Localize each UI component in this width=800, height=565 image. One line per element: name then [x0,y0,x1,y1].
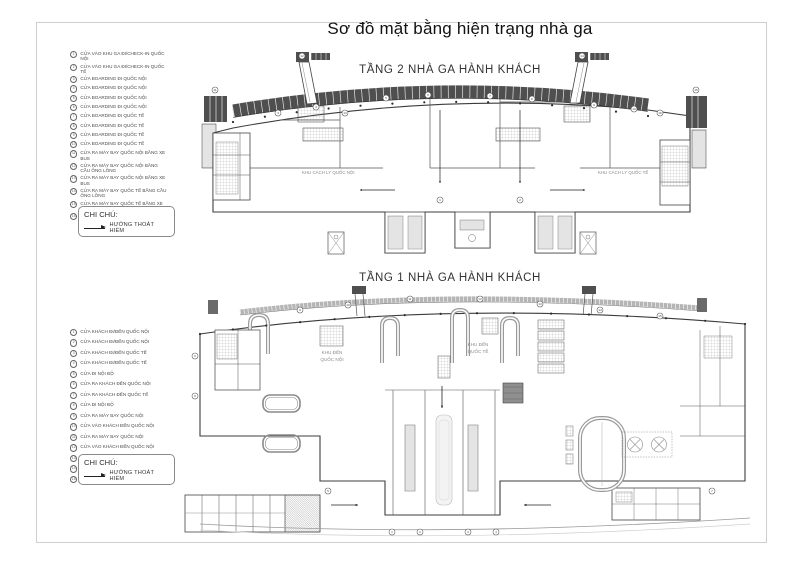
column-dot [551,104,553,106]
legend-item-number: 8 [70,123,77,130]
legend-item-number: 3 [70,350,77,357]
floor2-plan: KHU CÁCH LY QUỐC NỘI KHU CÁCH LY QUỐC TẾ… [190,50,775,265]
column-dot [665,317,667,319]
svg-text:KHU ĐẾN: KHU ĐẾN [322,349,343,355]
gate-marker-number: 11 [213,88,216,92]
gate-marker-number: 3 [277,111,279,115]
svg-text:QUỐC NỘI: QUỐC NỘI [320,356,343,362]
legend-item: 7CỬA RA KHÁCH ĐẾN QUỐC TẾ [70,392,190,399]
equipment-block [438,356,450,378]
gate-marker-number: 3 [467,530,469,534]
column-dot [455,101,457,103]
gate-marker-number: 15 [658,314,662,318]
column-dot [583,107,585,109]
column-dot [359,105,361,107]
legend-item-number: 13 [70,455,77,462]
legend-item-label: CỬA ĐI NỘI BỘ [80,402,176,407]
legend-item-label: CỬA BOARDING ĐI QUỐC TẾ [80,141,168,146]
legend-item: 12CỬA VÀO KHÁCH ĐẾN QUỐC NỘI [70,444,190,451]
legend-item-label: CỬA RA MÁY BAY QUỐC TẾ BẰNG CẦU ỐNG LỒNG [80,188,168,199]
gate-lounge-left [303,128,343,141]
legend-item-label: CỬA BOARDING ĐI QUỐC NỘI [80,95,168,100]
legend-item-label: CỬA ĐI NỘI BỘ [80,371,176,376]
legend-item-label: CỬA KHÁCH ĐI/ĐẾN QUỐC TẾ [80,360,176,365]
legend-item-number: 2 [70,339,77,346]
annex-right [612,488,700,520]
legend-item-number: 5 [70,371,77,378]
gate-marker-number: 10 [632,107,636,111]
stair-core-right [535,212,575,253]
escape-direction-arrow-icon [84,228,105,229]
gate-marker-number: 12 [478,297,482,301]
column-dot [299,321,301,323]
legend-item-label: CỬA BOARDING ĐI QUỐC TẾ [80,123,168,128]
legend-item-number: 1 [70,329,77,336]
legend-item-number: 4 [70,85,77,92]
gate-marker-number: 1 [439,198,441,202]
room-block-left [215,330,260,390]
gate-marker-number: 4 [315,105,317,109]
legend-item-number: 8 [70,402,77,409]
legend-item-number: 12 [70,444,77,451]
legend-item: 8CỬA ĐI NỘI BỘ [70,402,190,409]
gate-marker-number: 2 [519,198,521,202]
legend-item: 1CỬA KHÁCH ĐI/ĐẾN QUỐC NỘI [70,329,190,336]
legend-item: 2CỬA VÀO KHU GA ĐI/CHECK-IN QUỐC TẾ [70,64,190,75]
page-title: Sơ đồ mặt bằng hiện trạng nhà ga [250,19,670,39]
gate-marker-number: 8 [531,97,533,101]
gate-marker-number: 7 [489,94,491,98]
column-dot [328,107,330,109]
legend-item-number: 10 [70,141,77,148]
legend-item-label: CỬA RA MÁY BAY QUỐC NỘI [80,413,176,418]
legend-item: 10CỬA VÀO KHÁCH ĐẾN QUỐC NỘI [70,423,190,430]
legend-item-number: 16 [70,213,77,220]
legend-item: 2CỬA KHÁCH ĐI/ĐẾN QUỐC NỘI [70,339,190,346]
legend-item-number: 9 [70,413,77,420]
legend-item: 4CỬA KHÁCH ĐI/ĐẾN QUỐC TẾ [70,360,190,367]
legend-floor2: 1CỬA VÀO KHU GA ĐI/CHECK-IN QUỐC NỘI2CỬA… [70,51,190,226]
column-dot [404,314,406,316]
floor1-plan: KHU ĐẾN QUỐC NỘI KHU ĐẾN QUỐC TẾ 6891011… [180,286,775,552]
note-title: CHI CHÚ: [84,458,169,467]
escape-direction-arrow-icon [84,476,105,477]
legend-item-number: 7 [70,113,77,120]
note-title: CHI CHÚ: [84,210,169,219]
legend-item: 9CỬA RA MÁY BAY QUỐC NỘI [70,413,190,420]
column-dot [588,313,590,315]
legend-item: 12CỬA RA MÁY BAY QUỐC NỘI BẰNG CẦU ỐNG L… [70,163,190,174]
legend-item: 11CỬA RA MÁY BAY QUỐC NỘI [70,434,190,441]
gate-marker-number: 9 [593,103,595,107]
gate-marker-number: 14 [580,54,584,58]
legend-item-label: CỬA VÀO KHU GA ĐI/CHECK-IN QUỐC NỘI [80,51,168,62]
gate-marker-number: 13 [343,111,347,115]
legend-item-label: CỬA RA MÁY BAY QUỐC NỘI BẰNG XE BUS [80,150,168,161]
legend-item-number: 1 [70,51,77,58]
legend-item-label: CỬA RA MÁY BAY QUỐC NỘI BẰNG CẦU ỐNG LỒN… [80,163,168,174]
gate-marker-number: 8 [194,394,196,398]
gate-marker-number: 14 [598,308,602,312]
stair-core-left [385,212,425,253]
column-dot [647,115,649,117]
column-dot [334,318,336,320]
legend-item-label: CỬA BOARDING ĐI QUỐC TẾ [80,132,168,137]
legend-item: 6CỬA BOARDING ĐI QUỐC NỘI [70,104,190,111]
column-dot [519,102,521,104]
legend-item-number: 12 [70,163,77,170]
legend-item-label: CỬA VÀO KHU GA ĐI/CHECK-IN QUỐC TẾ [80,64,168,75]
end-stub-left [208,300,218,314]
legend-item-number: 2 [70,64,77,71]
legend-item-label: CỬA RA KHÁCH ĐẾN QUỐC TẾ [80,392,176,397]
gate-marker-number: 4 [495,530,497,534]
legend-item-label: CỬA BOARDING ĐI QUỐC TẾ [80,113,168,118]
office-stack [538,320,564,373]
legend-item-number: 3 [70,76,77,83]
legend-item-number: 6 [70,381,77,388]
area-label-domestic-sterile: KHU CÁCH LY QUỐC NỘI [302,170,355,175]
equipment-block [482,318,498,334]
legend-item: 5CỬA BOARDING ĐI QUỐC NỘI [70,95,190,102]
legend-item: 10CỬA BOARDING ĐI QUỐC TẾ [70,141,190,148]
legend-item-number: 5 [70,95,77,102]
legend-item: 11CỬA RA MÁY BAY QUỐC NỘI BẰNG XE BUS [70,150,190,161]
column-dot [626,315,628,317]
legend-item-label: CỬA VÀO KHÁCH ĐẾN QUỐC NỘI [80,423,176,428]
gate-vestibule-right [564,106,590,122]
legend-item-number: 10 [70,423,77,430]
gate-marker-number: 10 [346,303,350,307]
gate-marker-number: 1 [391,530,393,534]
legend-item-number: 15 [70,201,77,208]
column-dot [264,116,266,118]
column-dot [368,316,370,318]
column-dot [265,324,267,326]
legend-item-label: CỬA KHÁCH ĐI/ĐẾN QUỐC NỘI [80,329,176,334]
legend-item: 3CỬA BOARDING ĐI QUỐC NỘI [70,76,190,83]
column-dot [199,333,201,335]
legend-item: 13CỬA RA MÁY BAY QUỐC NỘI BẰNG XE BUS [70,175,190,186]
legend-item-number: 4 [70,360,77,367]
gate-marker-number: 13 [538,302,542,306]
area-label-international-sterile: KHU CÁCH LY QUỐC TẾ [598,170,648,175]
service-block [503,383,523,403]
legend-item-number: 9 [70,132,77,139]
legend-item-number: 11 [70,434,77,441]
legend-item-label: CỬA BOARDING ĐI QUỐC NỘI [80,76,168,81]
legend-item-label: CỬA BOARDING ĐI QUỐC NỘI [80,85,168,90]
legend-item-number: 14 [70,465,77,472]
note-arrow-label: HƯỚNG THOÁT HIỂM [109,470,169,482]
gate-marker-number: 6 [194,354,196,358]
column-dot [487,101,489,103]
legend-item-label: CỬA BOARDING ĐI QUỐC NỘI [80,104,168,109]
column-dot [296,111,298,113]
floor1-title: TẦNG 1 NHÀ GA HÀNH KHÁCH [300,272,600,284]
legend-item-number: 6 [70,104,77,111]
equipment-block [320,326,343,346]
gate-marker-number: 9 [299,308,301,312]
legend-item-number: 13 [70,175,77,182]
column-dot [513,312,515,314]
terminal-outline [213,103,690,253]
column-dot [232,121,234,123]
legend-item: 8CỬA BOARDING ĐI QUỐC TẾ [70,123,190,130]
note-box-floor1: CHI CHÚ: HƯỚNG THOÁT HIỂM [78,454,175,485]
end-stub-right [697,298,707,312]
gate-marker-number: 5 [327,489,329,493]
note-box-floor2: CHI CHÚ: HƯỚNG THOÁT HIỂM [78,206,175,237]
legend-item: 9CỬA BOARDING ĐI QUỐC TẾ [70,132,190,139]
central-lobby [455,212,490,248]
column-dot [550,313,552,315]
column-dot [615,111,617,113]
room-block-left [213,133,250,200]
escalator-tower-right [580,232,596,254]
drawing-sheet: Sơ đồ mặt bằng hiện trạng nhà ga TẦNG 2 … [0,0,800,565]
legend-item-label: CỬA KHÁCH ĐI/ĐẾN QUỐC NỘI [80,339,176,344]
legend-item-label: CỬA VÀO KHÁCH ĐẾN QUỐC NỘI [80,444,176,449]
column-dot [391,103,393,105]
legend-item-label: CỬA RA MÁY BAY QUỐC NỘI BẰNG XE BUS [80,175,168,186]
gate-marker-number: 12 [300,54,304,58]
legend-item: 3CỬA KHÁCH ĐI/ĐẾN QUỐC TẾ [70,350,190,357]
column-dot [423,101,425,103]
legend-item: 7CỬA BOARDING ĐI QUỐC TẾ [70,113,190,120]
column-dot [744,323,746,325]
gate-marker-number: 5 [385,96,387,100]
legend-item-number: 11 [70,150,77,157]
svg-text:KHU ĐẾN: KHU ĐẾN [468,341,489,347]
legend-item-label: CỬA RA MÁY BAY QUỐC NỘI [80,434,176,439]
legend-item: 6CỬA RA KHÁCH ĐẾN QUỐC NỘI [70,381,190,388]
legend-item-number: 7 [70,392,77,399]
gate-lounge-right [496,128,540,141]
escalator-tower-left [328,232,344,254]
note-arrow-label: HƯỚNG THOÁT HIỂM [109,222,169,234]
legend-item-number: 15 [70,476,77,483]
legend-item: 4CỬA BOARDING ĐI QUỐC NỘI [70,85,190,92]
column-dot [440,313,442,315]
gate-marker-number: 11 [408,297,411,301]
legend-item-number: 14 [70,188,77,195]
gate-marker-number: 15 [694,88,698,92]
column-dot [704,320,706,322]
legend-item-label: CỬA RA KHÁCH ĐẾN QUỐC NỘI [80,381,176,386]
legend-item: 1CỬA VÀO KHU GA ĐI/CHECK-IN QUỐC NỘI [70,51,190,62]
legend-item: 5CỬA ĐI NỘI BỘ [70,371,190,378]
roof-edge [240,299,700,315]
column-dot [476,312,478,314]
svg-text:QUỐC TẾ: QUỐC TẾ [468,348,489,354]
legend-item-label: CỬA KHÁCH ĐI/ĐẾN QUỐC TẾ [80,350,176,355]
gate-marker-number: 16 [658,111,662,115]
gate-marker-number: 7 [711,489,713,493]
room-block-right [660,140,690,205]
gate-vestibule-left [298,106,324,122]
gate-marker-number: 2 [419,530,421,534]
legend-item: 14CỬA RA MÁY BAY QUỐC TẾ BẰNG CẦU ỐNG LỒ… [70,188,190,199]
column-dot [232,328,234,330]
gate-marker-number: 6 [427,93,429,97]
